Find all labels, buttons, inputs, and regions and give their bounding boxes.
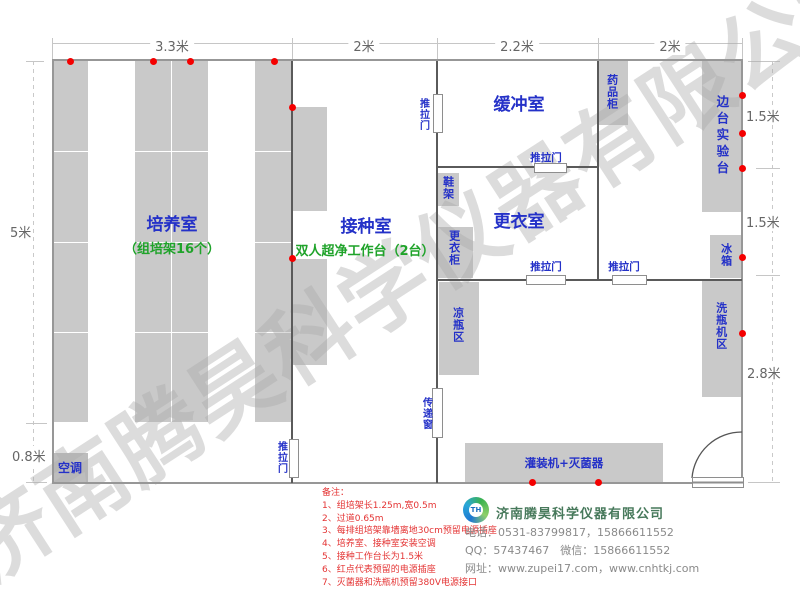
filling-sterilizer-label: 灌装机+灭菌器 [481,457,647,470]
shoe-rack-label: 鞋架 [441,176,454,200]
room-sublabel-inoculation: 双人超净工作台（2台） [285,240,445,259]
dim-tick [52,38,53,60]
power-outlet-dot [739,165,746,172]
company-phone: 电话：0531-83799817，15866611552 [465,524,674,540]
room-label-inoculation: 接种室 [306,218,426,238]
sliding-door [534,163,567,173]
dim-tick [742,38,743,60]
power-outlet-dot [150,58,157,65]
note-item: 7、灭菌器和洗瓶机预留380V电源接口 [322,577,497,590]
dim-tick [26,482,47,483]
washer-area-label: 洗瓶机区 [714,302,727,350]
pass-window [432,388,443,438]
dim-tick [756,168,780,169]
sliding-door [289,439,299,478]
power-outlet-dot [529,479,536,486]
culture-rack [255,152,292,242]
culture-rack [52,333,88,422]
power-outlet-dot [67,58,74,65]
power-outlet-dot [739,92,746,99]
dim-tick [26,423,47,424]
power-outlet-dot [187,58,194,65]
medicine-cabinet-label: 药品柜 [605,74,618,110]
dim-left-bottom: 0.8米 [12,446,46,465]
dim-tick [292,38,293,60]
power-outlet-dot [289,255,296,262]
wall-buffer-south [437,166,534,168]
fridge-label: 冰箱 [719,243,732,267]
room-label-buffer: 缓冲室 [459,96,579,116]
dim-tick [437,38,438,60]
room-label-cultivation: 培养室 [112,216,232,236]
dim-line-left [33,61,34,483]
sliding-door-label: 推拉门 [594,261,654,273]
dim-top-3: 2.2米 [495,36,539,55]
sliding-door-label: 推拉门 [275,441,287,474]
room-label-changing: 更衣室 [459,213,579,233]
sliding-door-label: 推拉门 [417,98,429,131]
culture-rack [255,333,292,422]
dim-top-4: 2米 [654,36,685,55]
wall-inoculation-east [436,130,438,388]
power-outlet-dot [595,479,602,486]
company-logo-initials: TH [469,503,483,517]
power-outlet-dot [739,130,746,137]
company-logo: TH [463,497,489,523]
clean-bench [293,107,327,211]
dim-tick [748,482,780,483]
power-outlet-dot [739,330,746,337]
power-outlet-dot [271,58,278,65]
company-qq-wechat: QQ：57437467 微信：15866611552 [465,542,670,558]
culture-rack [172,61,208,151]
power-outlet-dot [289,104,296,111]
dim-right-1: 1.5米 [746,106,780,125]
culture-rack [135,333,171,422]
company-name: 济南腾昊科学仪器有限公司 [496,503,664,522]
sliding-door [433,94,443,133]
air-conditioner-label: 空调 [52,462,88,476]
wall-changing-south [646,279,742,281]
dim-tick [756,275,780,276]
sliding-door-label: 推拉门 [516,152,576,164]
sliding-door [612,275,647,285]
culture-rack [255,61,292,151]
dim-top-1: 3.3米 [150,36,194,55]
wardrobe-label: 更衣柜 [447,230,460,266]
culture-rack [172,333,208,422]
culture-rack [52,61,88,151]
dim-left-main: 5米 [10,222,31,241]
wall-left [52,59,54,484]
sliding-door [526,275,566,285]
dim-tick [26,61,44,62]
wall-changing-east [597,61,599,281]
dim-tick [748,61,780,62]
company-website: 网址：www.zupei17.com，www.cnhtkj.com [465,560,699,576]
power-outlet-dot [739,254,746,261]
swing-door-frame [692,477,744,488]
pass-window-label: 传递窗 [420,397,432,430]
dim-top-2: 2米 [348,36,379,55]
wall-inoculation-east [436,61,438,94]
room-sublabel-cultivation: （组培架16个） [102,238,242,257]
culture-rack [52,152,88,242]
sliding-door-label: 推拉门 [516,261,576,273]
wall-inoculation-east [436,434,438,483]
dim-right-2: 1.5米 [746,212,780,231]
dim-tick [598,38,599,60]
wall-buffer-south [565,166,598,168]
dim-right-3: 2.8米 [747,363,781,382]
side-bench-label: 边台实验台 [714,95,728,178]
clean-bench [293,259,327,365]
wall-changing-south [437,279,526,281]
culture-rack [52,243,88,332]
culture-rack [135,61,171,151]
wall-right [741,59,743,484]
floor-plan-canvas: 济南腾昊科学仪器有限公司 3.3米 2米 2.2米 2米 5米 0.8米 1.5… [0,0,800,600]
cooling-area-label: 凉瓶区 [451,307,464,343]
wall-changing-south [565,279,612,281]
